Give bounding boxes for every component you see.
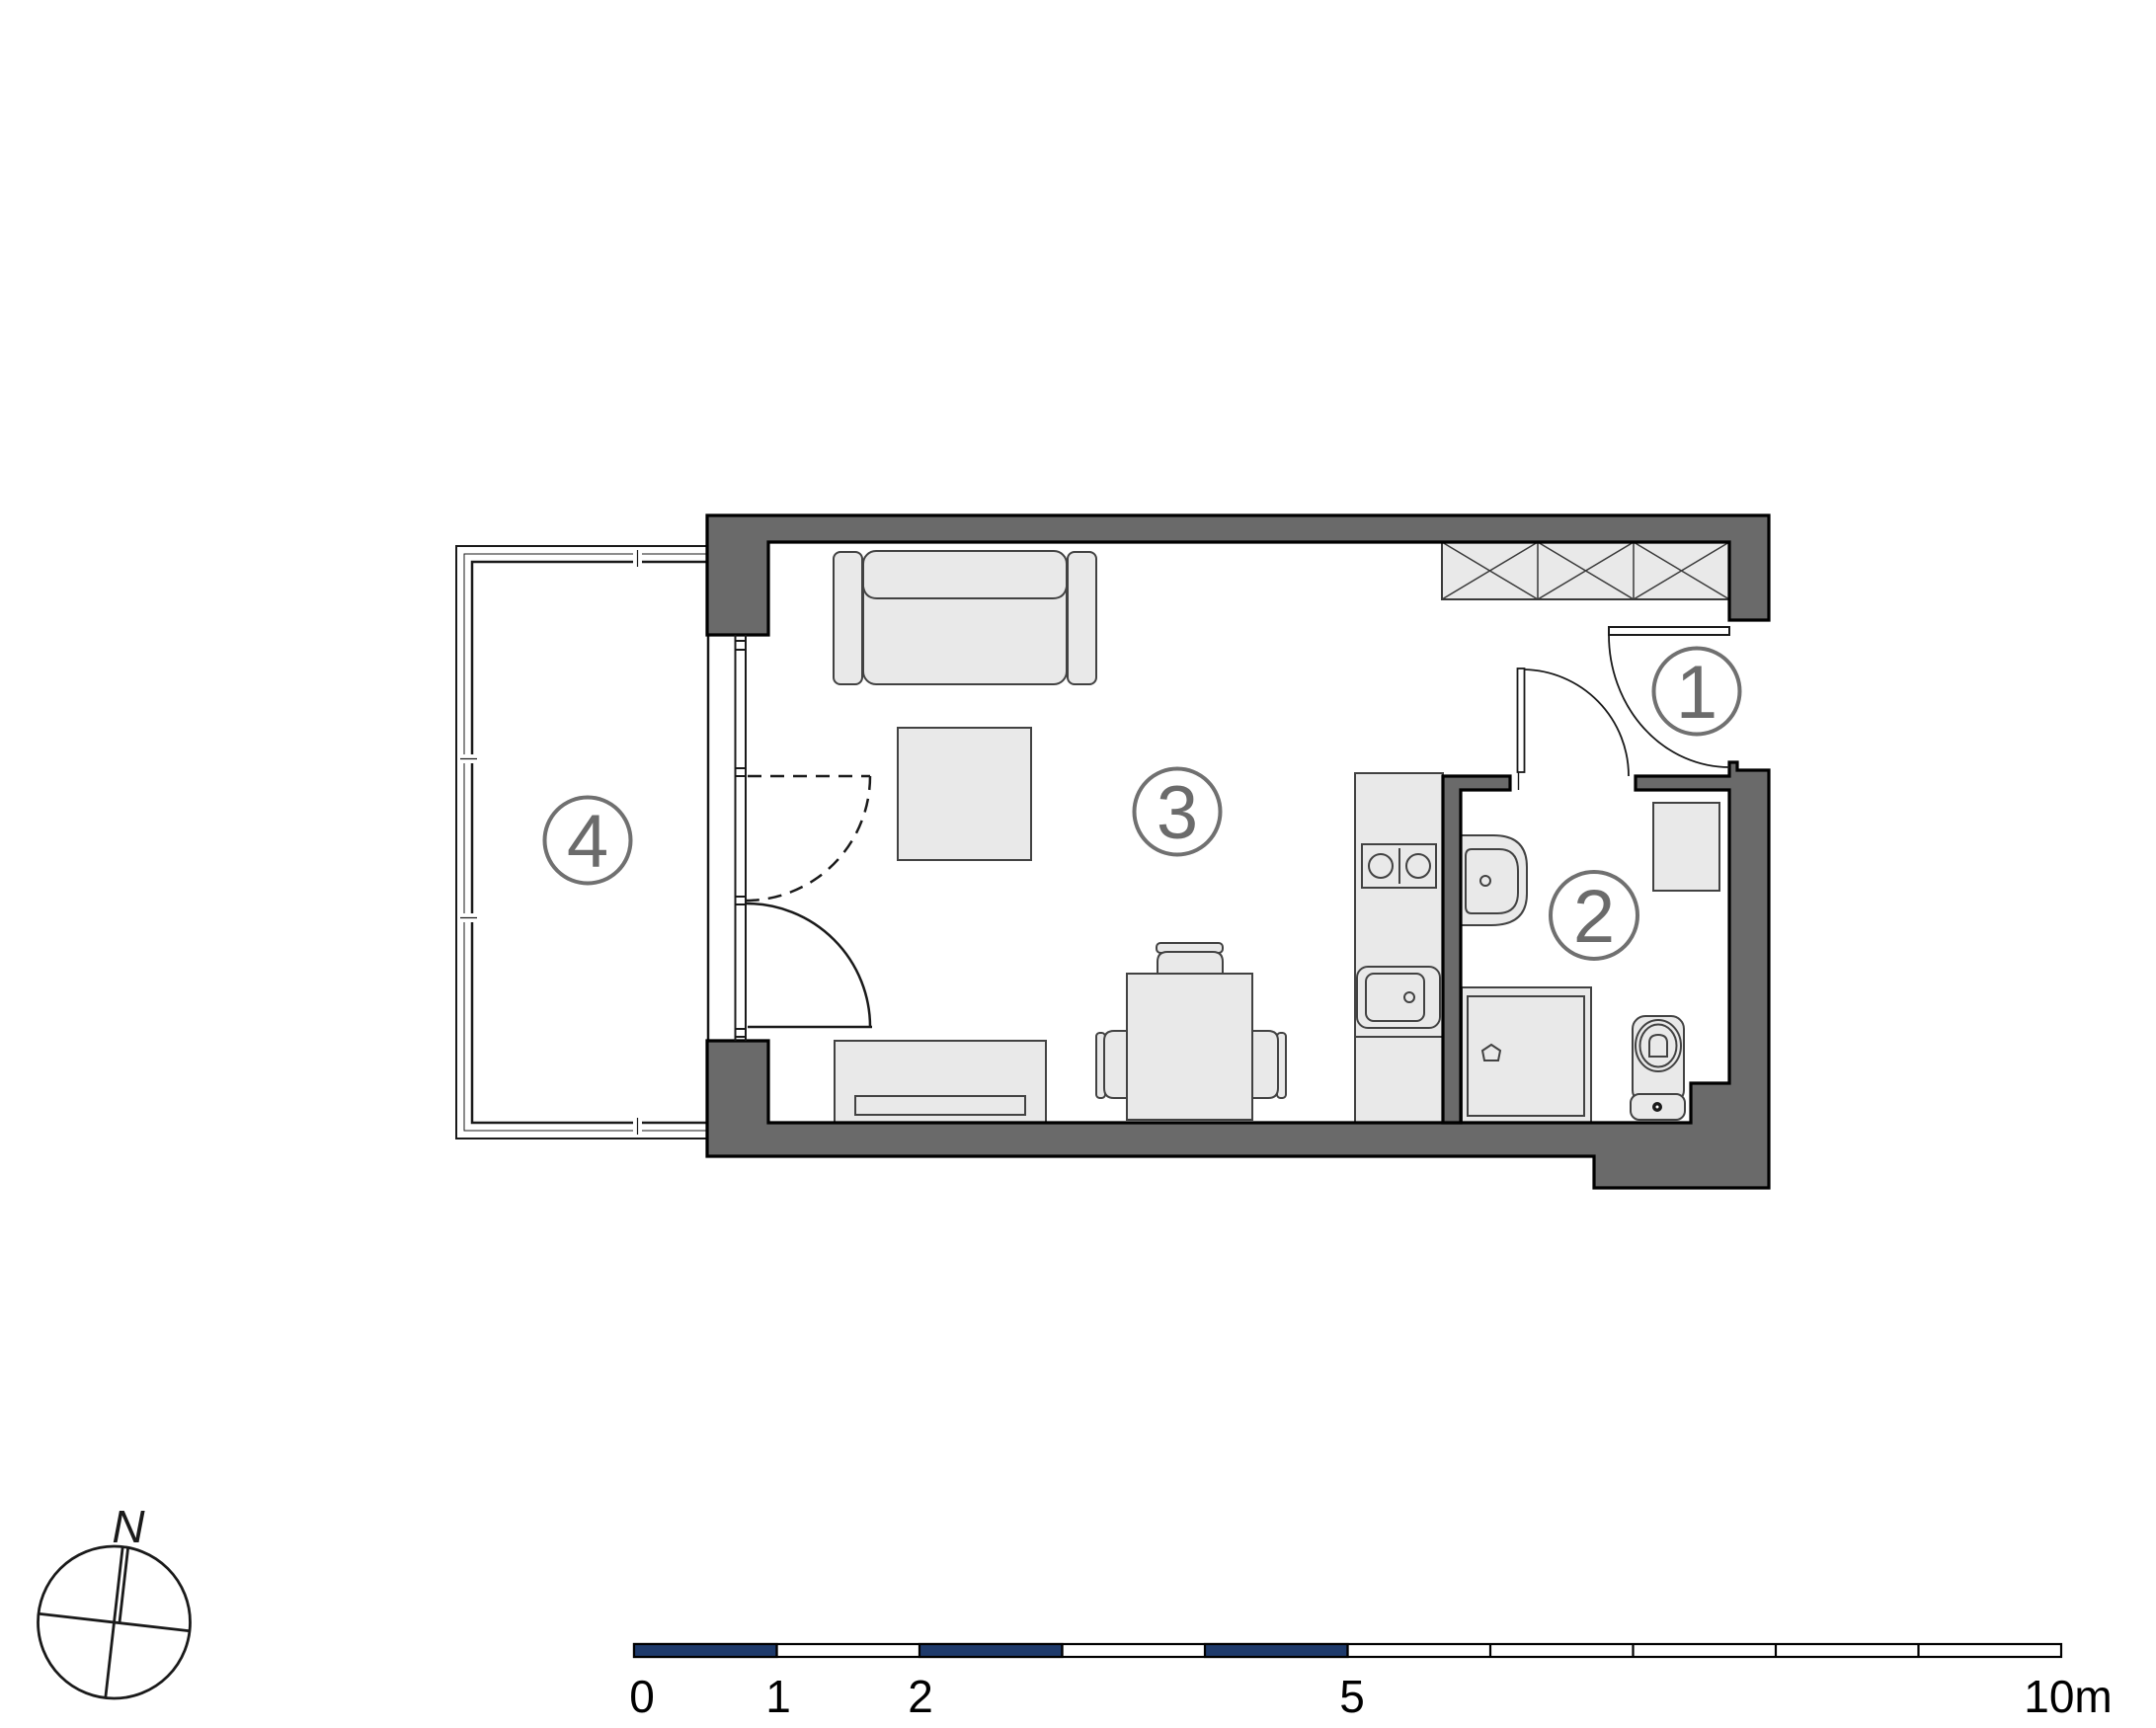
svg-text:4: 4 bbox=[567, 800, 608, 884]
svg-text:0: 0 bbox=[629, 1671, 655, 1722]
svg-text:N: N bbox=[112, 1501, 145, 1552]
svg-text:2: 2 bbox=[908, 1671, 933, 1722]
svg-text:10m: 10m bbox=[2024, 1671, 2112, 1722]
svg-text:1: 1 bbox=[1676, 651, 1717, 735]
svg-text:3: 3 bbox=[1157, 771, 1198, 855]
svg-text:5: 5 bbox=[1339, 1671, 1365, 1722]
svg-text:1: 1 bbox=[765, 1671, 791, 1722]
svg-text:2: 2 bbox=[1573, 875, 1615, 959]
